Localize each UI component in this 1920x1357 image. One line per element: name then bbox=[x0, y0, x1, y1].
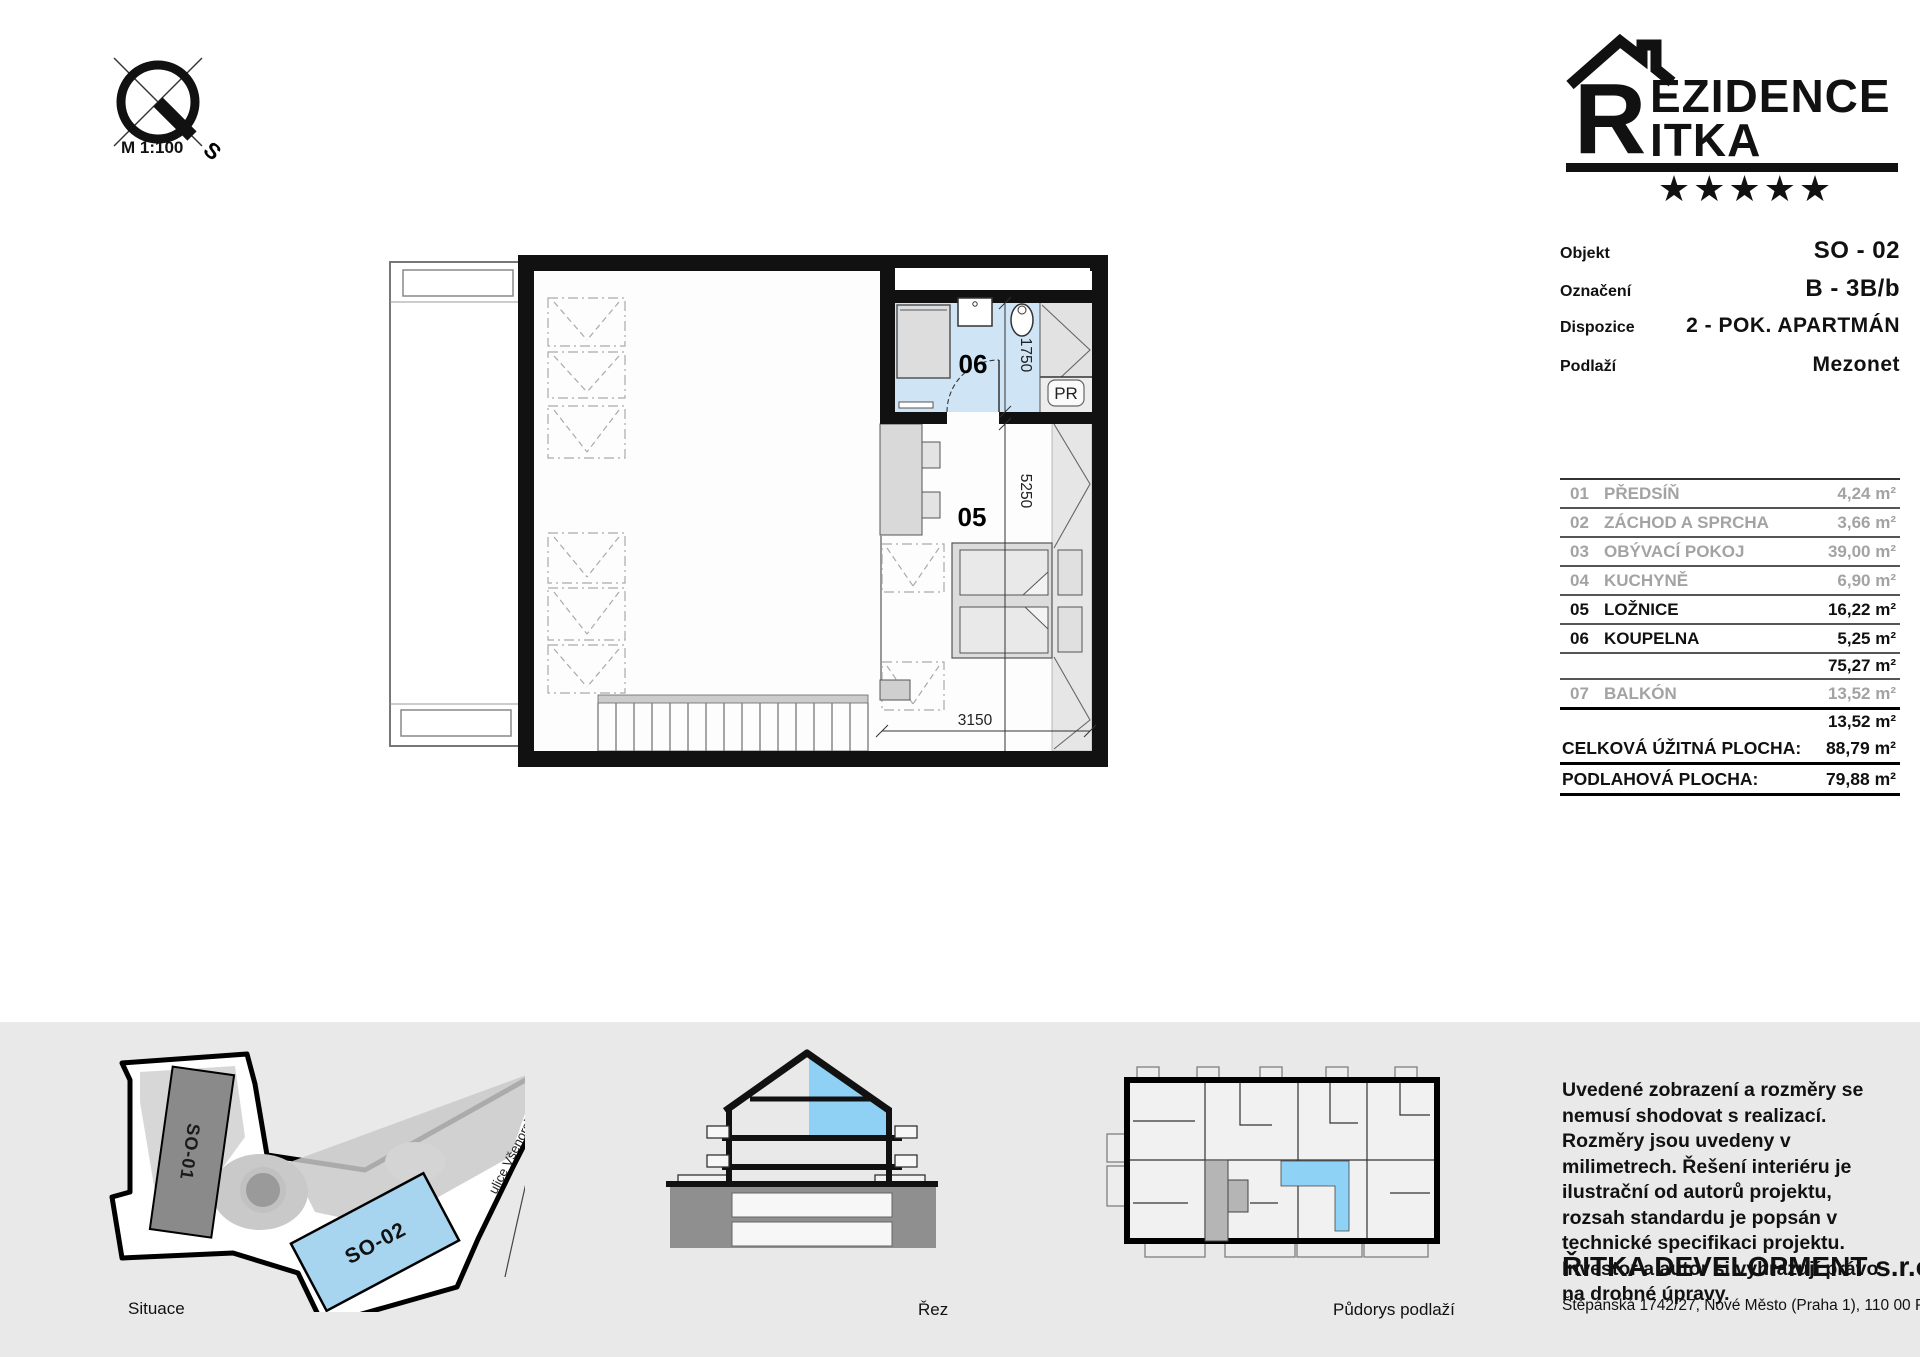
room-area: 16,22 m² bbox=[1828, 600, 1900, 620]
info-row-dispozice: Dispozice 2 - POK. APARTMÁN bbox=[1560, 314, 1900, 338]
stair-landing bbox=[880, 680, 910, 700]
room-05-label: 05 bbox=[958, 502, 987, 532]
site-plan: SO-01 SO-02 ulice Všenorská bbox=[85, 1042, 525, 1312]
subtotal-row: 13,52 m² bbox=[1560, 710, 1900, 734]
room-table: 01 PŘEDSÍŇ 4,24 m² 02 ZÁCHOD A SPRCHA 3,… bbox=[1560, 478, 1900, 796]
nightstand bbox=[1058, 607, 1082, 652]
room-area: 5,25 m² bbox=[1837, 629, 1900, 649]
site-plan-caption: Situace bbox=[128, 1299, 185, 1319]
room-area: 4,24 m² bbox=[1837, 484, 1900, 504]
dim-3150: 3150 bbox=[958, 712, 993, 729]
basement-level bbox=[732, 1193, 892, 1217]
dispozice-value: 2 - POK. APARTMÁN bbox=[1686, 314, 1900, 338]
table-row: 06 KOUPELNA 5,25 m² bbox=[1560, 625, 1900, 654]
room-num: 03 bbox=[1560, 542, 1604, 562]
room-name: ZÁCHOD A SPRCHA bbox=[1604, 513, 1837, 533]
room-name: OBÝVACÍ POKOJ bbox=[1604, 542, 1828, 562]
logo-letter-r: R bbox=[1574, 63, 1646, 175]
table-row: 05 LOŽNICE 16,22 m² bbox=[1560, 596, 1900, 625]
info-row-podlazi: Podlaží Mezonet bbox=[1560, 353, 1900, 377]
room-num: 01 bbox=[1560, 484, 1604, 504]
shower bbox=[897, 305, 950, 378]
info-row-objekt: Objekt SO - 02 bbox=[1560, 237, 1900, 265]
basement-level bbox=[732, 1222, 892, 1246]
building-section bbox=[662, 1046, 962, 1286]
room-06-label: 06 bbox=[959, 349, 988, 379]
podlazi-label: Podlaží bbox=[1560, 358, 1616, 376]
room-area: 13,52 m² bbox=[1828, 684, 1900, 704]
bathroom-zone: PR 06 bbox=[880, 268, 1092, 424]
floor-plan: PR 06 05 1750 5250 3150 bbox=[385, 252, 1115, 770]
scale-label: M 1:100 bbox=[121, 138, 183, 158]
room-name: BALKÓN bbox=[1604, 684, 1828, 704]
info-row-oznaceni: Označení B - 3B/b bbox=[1560, 275, 1900, 303]
logo-stars: ★★★★★ bbox=[1658, 168, 1834, 205]
room-num: 06 bbox=[1560, 629, 1604, 649]
subtotal-balcony: 13,52 m² bbox=[1828, 712, 1900, 732]
building-floor-plan bbox=[1100, 1063, 1490, 1283]
total-value: 88,79 m² bbox=[1826, 738, 1900, 759]
table-row: 03 OBÝVACÍ POKOJ 39,00 m² bbox=[1560, 538, 1900, 567]
compass-south-label: S bbox=[199, 137, 226, 163]
room-name: PŘEDSÍŇ bbox=[1604, 484, 1837, 504]
dim-5250: 5250 bbox=[1017, 474, 1034, 509]
balcony-strip bbox=[390, 262, 523, 746]
pr-room-label: PR bbox=[1054, 384, 1078, 403]
floor-area-label: PODLAHOVÁ PLOCHA: bbox=[1560, 769, 1826, 790]
room-name: LOŽNICE bbox=[1604, 600, 1828, 620]
table-row: 02 ZÁCHOD A SPRCHA 3,66 m² bbox=[1560, 509, 1900, 538]
building-floor-plan-caption: Půdorys podlaží bbox=[1333, 1300, 1455, 1320]
oznaceni-label: Označení bbox=[1560, 283, 1631, 301]
room-num: 02 bbox=[1560, 513, 1604, 533]
bath-mat bbox=[899, 402, 933, 408]
room-name: KUCHYNĚ bbox=[1604, 571, 1837, 591]
room-area: 39,00 m² bbox=[1828, 542, 1900, 562]
total-label: CELKOVÁ ÚŽITNÁ PLOCHA: bbox=[1560, 738, 1826, 759]
room-num: 04 bbox=[1560, 571, 1604, 591]
floor-area-value: 79,88 m² bbox=[1826, 769, 1900, 790]
section-caption: Řez bbox=[918, 1300, 948, 1320]
title-block-panel: R EZIDENCE ITKA ★★★★★ Objekt SO - 02 Ozn… bbox=[1560, 25, 1900, 1345]
site-circle-feature bbox=[243, 1170, 283, 1210]
table-row: 04 KUCHYNĚ 6,90 m² bbox=[1560, 567, 1900, 596]
dim-1750: 1750 bbox=[1017, 338, 1034, 373]
room-area: 6,90 m² bbox=[1837, 571, 1900, 591]
subtotal-interior: 75,27 m² bbox=[1828, 656, 1900, 676]
logo-line2: ITKA bbox=[1650, 114, 1761, 166]
room-area: 3,66 m² bbox=[1837, 513, 1900, 533]
ground-line bbox=[666, 1181, 938, 1187]
oznaceni-value: B - 3B/b bbox=[1805, 275, 1900, 303]
table-row: 01 PŘEDSÍŇ 4,24 m² bbox=[1560, 480, 1900, 509]
objekt-value: SO - 02 bbox=[1814, 237, 1900, 265]
floor-area-row: PODLAHOVÁ PLOCHA: 79,88 m² bbox=[1560, 765, 1900, 796]
table-row: 07 BALKÓN 13,52 m² bbox=[1560, 680, 1900, 710]
company-address: Štěpánská 1742/27, Nové Město (Praha 1),… bbox=[1562, 1297, 1920, 1315]
page: { "page": { "scale": "M 1:100" }, "compa… bbox=[0, 0, 1920, 1357]
dispozice-label: Dispozice bbox=[1560, 319, 1635, 337]
nightstand bbox=[1058, 550, 1082, 595]
room-name: KOUPELNA bbox=[1604, 629, 1837, 649]
company-name: ŘITKA DEVELOPMENT s.r.o. bbox=[1562, 1251, 1920, 1283]
rezidence-ritka-logo: R EZIDENCE ITKA ★★★★★ bbox=[1560, 25, 1905, 205]
room-num: 05 bbox=[1560, 600, 1604, 620]
room-num: 07 bbox=[1560, 684, 1604, 704]
total-row: CELKOVÁ ÚŽITNÁ PLOCHA: 88,79 m² bbox=[1560, 734, 1900, 765]
podlazi-value: Mezonet bbox=[1813, 353, 1901, 377]
window-band bbox=[895, 268, 1090, 290]
objekt-label: Objekt bbox=[1560, 245, 1610, 263]
subtotal-row: 75,27 m² bbox=[1560, 654, 1900, 680]
